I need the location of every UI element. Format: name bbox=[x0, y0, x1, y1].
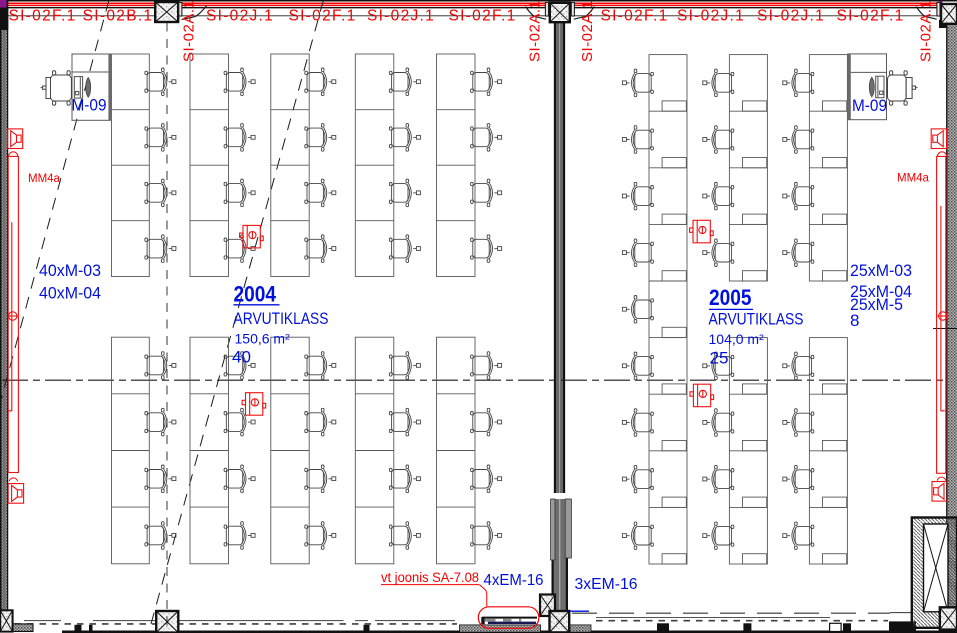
svg-text:MM4a: MM4a bbox=[897, 173, 930, 185]
svg-text:SI-02A.1: SI-02A.1 bbox=[579, 0, 596, 62]
svg-text:ARVUTIKLASS: ARVUTIKLASS bbox=[234, 309, 329, 328]
svg-text:SI-02F.1: SI-02F.1 bbox=[836, 8, 904, 25]
svg-text:SI-02F.1: SI-02F.1 bbox=[600, 8, 668, 25]
svg-text:4xEM-16: 4xEM-16 bbox=[484, 572, 544, 589]
svg-text:SI-02J.1: SI-02J.1 bbox=[757, 8, 825, 25]
svg-text:40xM-04: 40xM-04 bbox=[39, 284, 101, 302]
svg-text:M-09: M-09 bbox=[72, 97, 107, 115]
svg-text:8: 8 bbox=[850, 312, 860, 330]
svg-text:SI-02F.1: SI-02F.1 bbox=[288, 8, 356, 25]
svg-text:25: 25 bbox=[710, 349, 729, 367]
svg-text:2004: 2004 bbox=[234, 281, 277, 306]
svg-text:SI-02F.1: SI-02F.1 bbox=[448, 8, 516, 25]
svg-text:SI-02J.1: SI-02J.1 bbox=[677, 8, 745, 25]
svg-text:ARVUTIKLASS: ARVUTIKLASS bbox=[709, 309, 804, 328]
svg-text:3xEM-16: 3xEM-16 bbox=[575, 576, 638, 593]
svg-text:SI-02F.1: SI-02F.1 bbox=[8, 8, 76, 25]
svg-text:150,6 m²: 150,6 m² bbox=[235, 331, 291, 347]
svg-text:M-09: M-09 bbox=[852, 97, 887, 115]
svg-text:SI-02A.1: SI-02A.1 bbox=[527, 0, 544, 62]
svg-text:MM4a: MM4a bbox=[28, 173, 61, 185]
svg-text:40xM-03: 40xM-03 bbox=[39, 262, 101, 280]
svg-text:SI-02J.1: SI-02J.1 bbox=[206, 8, 274, 25]
svg-text:104,0 m²: 104,0 m² bbox=[709, 331, 765, 347]
svg-text:SI-02A.1: SI-02A.1 bbox=[181, 0, 198, 62]
svg-text:SI-02J.1: SI-02J.1 bbox=[367, 8, 435, 25]
svg-text:SI-02B.1: SI-02B.1 bbox=[83, 8, 154, 25]
svg-text:vt joonis SA-7.08: vt joonis SA-7.08 bbox=[381, 570, 479, 585]
svg-text:SI-02A.1: SI-02A.1 bbox=[917, 0, 934, 62]
svg-text:40: 40 bbox=[232, 349, 251, 367]
svg-text:25xM-03: 25xM-03 bbox=[850, 262, 912, 280]
svg-text:2005: 2005 bbox=[709, 285, 752, 310]
